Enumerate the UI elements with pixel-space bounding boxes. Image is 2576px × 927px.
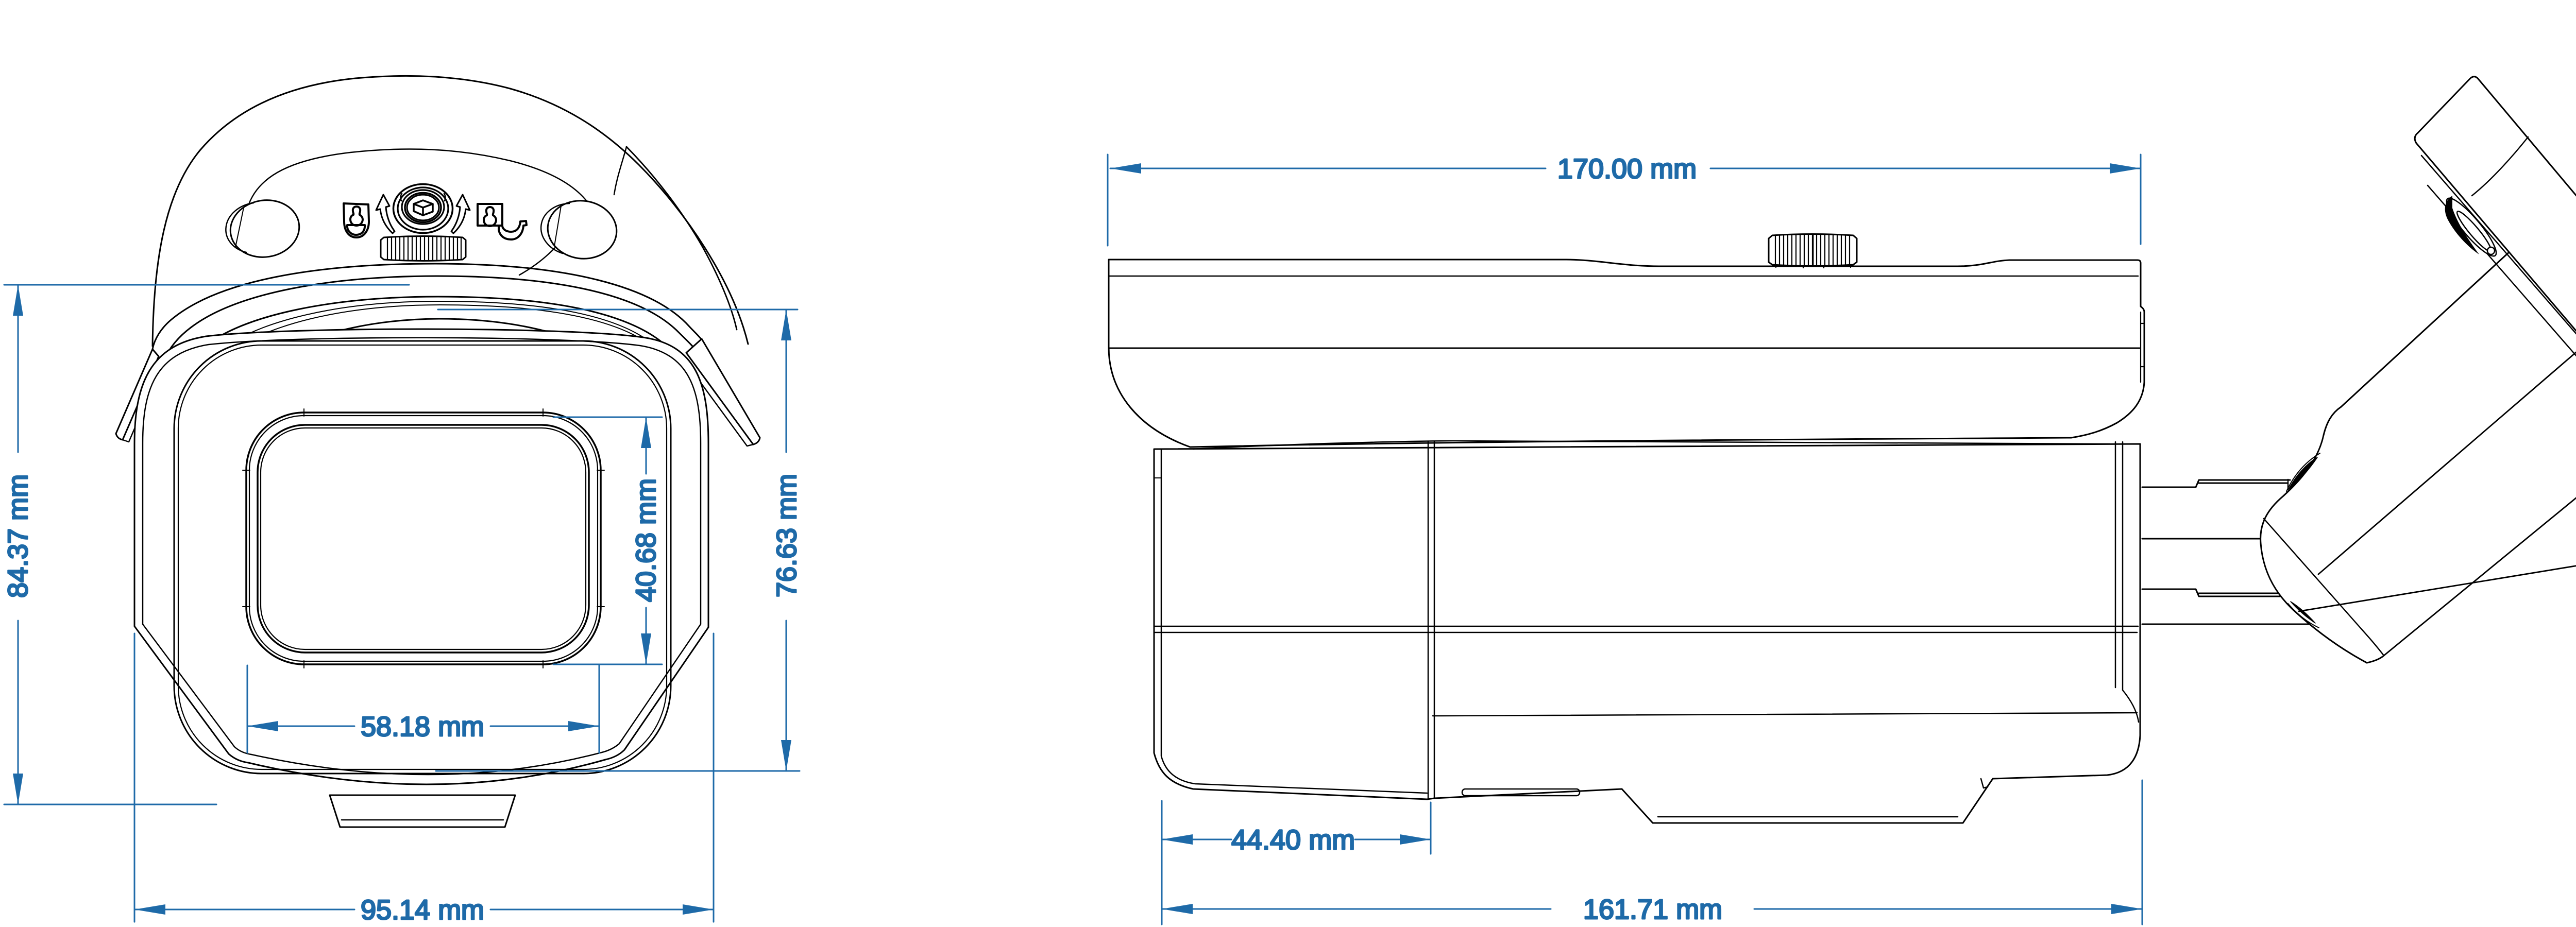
svg-text:84.37 mm: 84.37 mm	[3, 474, 33, 598]
svg-text:170.00 mm: 170.00 mm	[1557, 153, 1697, 184]
svg-text:44.40 mm: 44.40 mm	[1231, 825, 1355, 855]
svg-text:95.14 mm: 95.14 mm	[361, 895, 484, 925]
svg-text:161.71 mm: 161.71 mm	[1583, 894, 1722, 925]
svg-text:40.68 mm: 40.68 mm	[631, 478, 662, 602]
svg-text:58.18 mm: 58.18 mm	[361, 711, 484, 742]
svg-text:76.63 mm: 76.63 mm	[771, 474, 802, 597]
